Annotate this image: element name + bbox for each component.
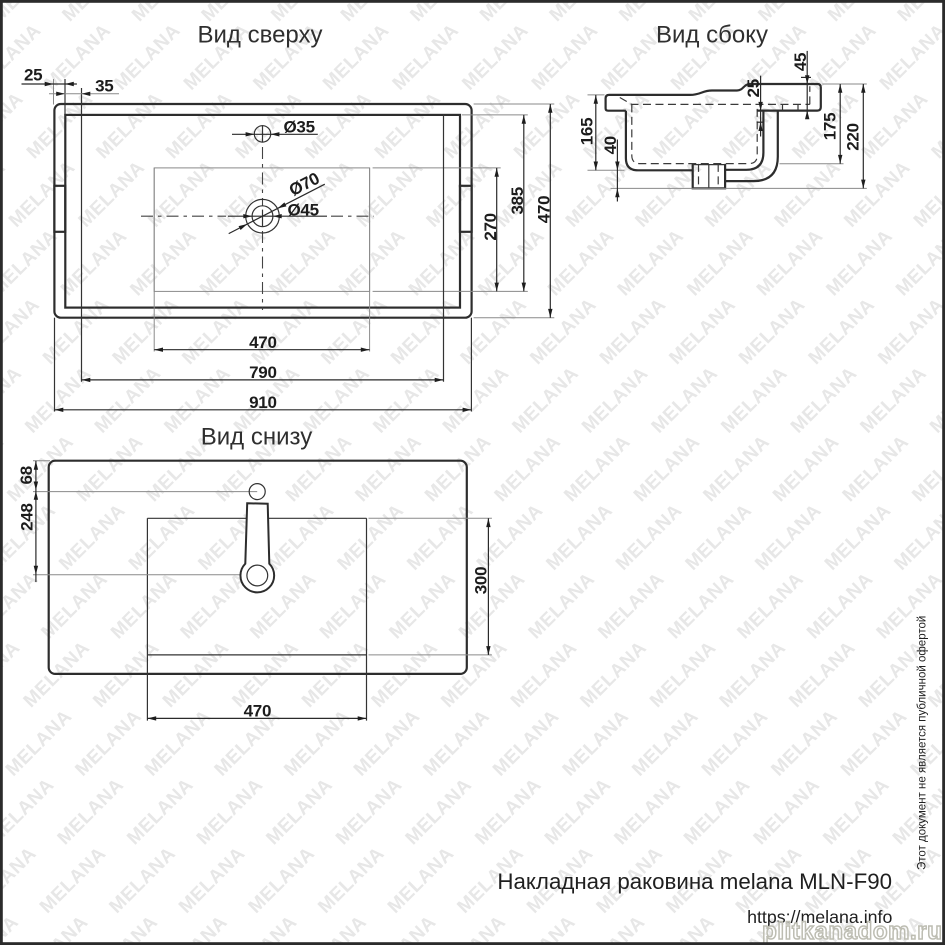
svg-text:Ø45: Ø45 — [288, 200, 319, 219]
svg-text:Вид снизу: Вид снизу — [201, 423, 312, 450]
svg-text:470: 470 — [244, 701, 271, 720]
svg-text:910: 910 — [249, 393, 276, 412]
svg-text:790: 790 — [249, 363, 276, 382]
svg-text:270: 270 — [481, 213, 500, 240]
svg-text:25: 25 — [744, 79, 763, 97]
svg-text:Ø35: Ø35 — [284, 117, 315, 136]
svg-text:Этот документ не является публ: Этот документ не является публичной офер… — [917, 616, 929, 870]
svg-text:Вид сбоку: Вид сбоку — [656, 21, 768, 48]
svg-text:Вид сверху: Вид сверху — [198, 21, 323, 48]
svg-text:40: 40 — [601, 136, 620, 154]
svg-text:165: 165 — [578, 118, 597, 145]
svg-text:470: 470 — [249, 333, 276, 352]
svg-text:385: 385 — [508, 187, 527, 214]
svg-text:220: 220 — [844, 123, 863, 150]
svg-text:248: 248 — [18, 503, 37, 530]
svg-text:68: 68 — [17, 466, 36, 484]
svg-text:25: 25 — [24, 65, 42, 84]
svg-text:35: 35 — [95, 77, 113, 96]
svg-text:Накладная раковина melana MLN-: Накладная раковина melana MLN-F90 — [497, 869, 892, 894]
svg-text:45: 45 — [791, 53, 810, 71]
svg-text:470: 470 — [535, 196, 554, 223]
svg-text:300: 300 — [472, 567, 491, 594]
svg-text:175: 175 — [821, 113, 840, 140]
svg-text:plitkanadom.ru: plitkanadom.ru — [762, 918, 942, 945]
